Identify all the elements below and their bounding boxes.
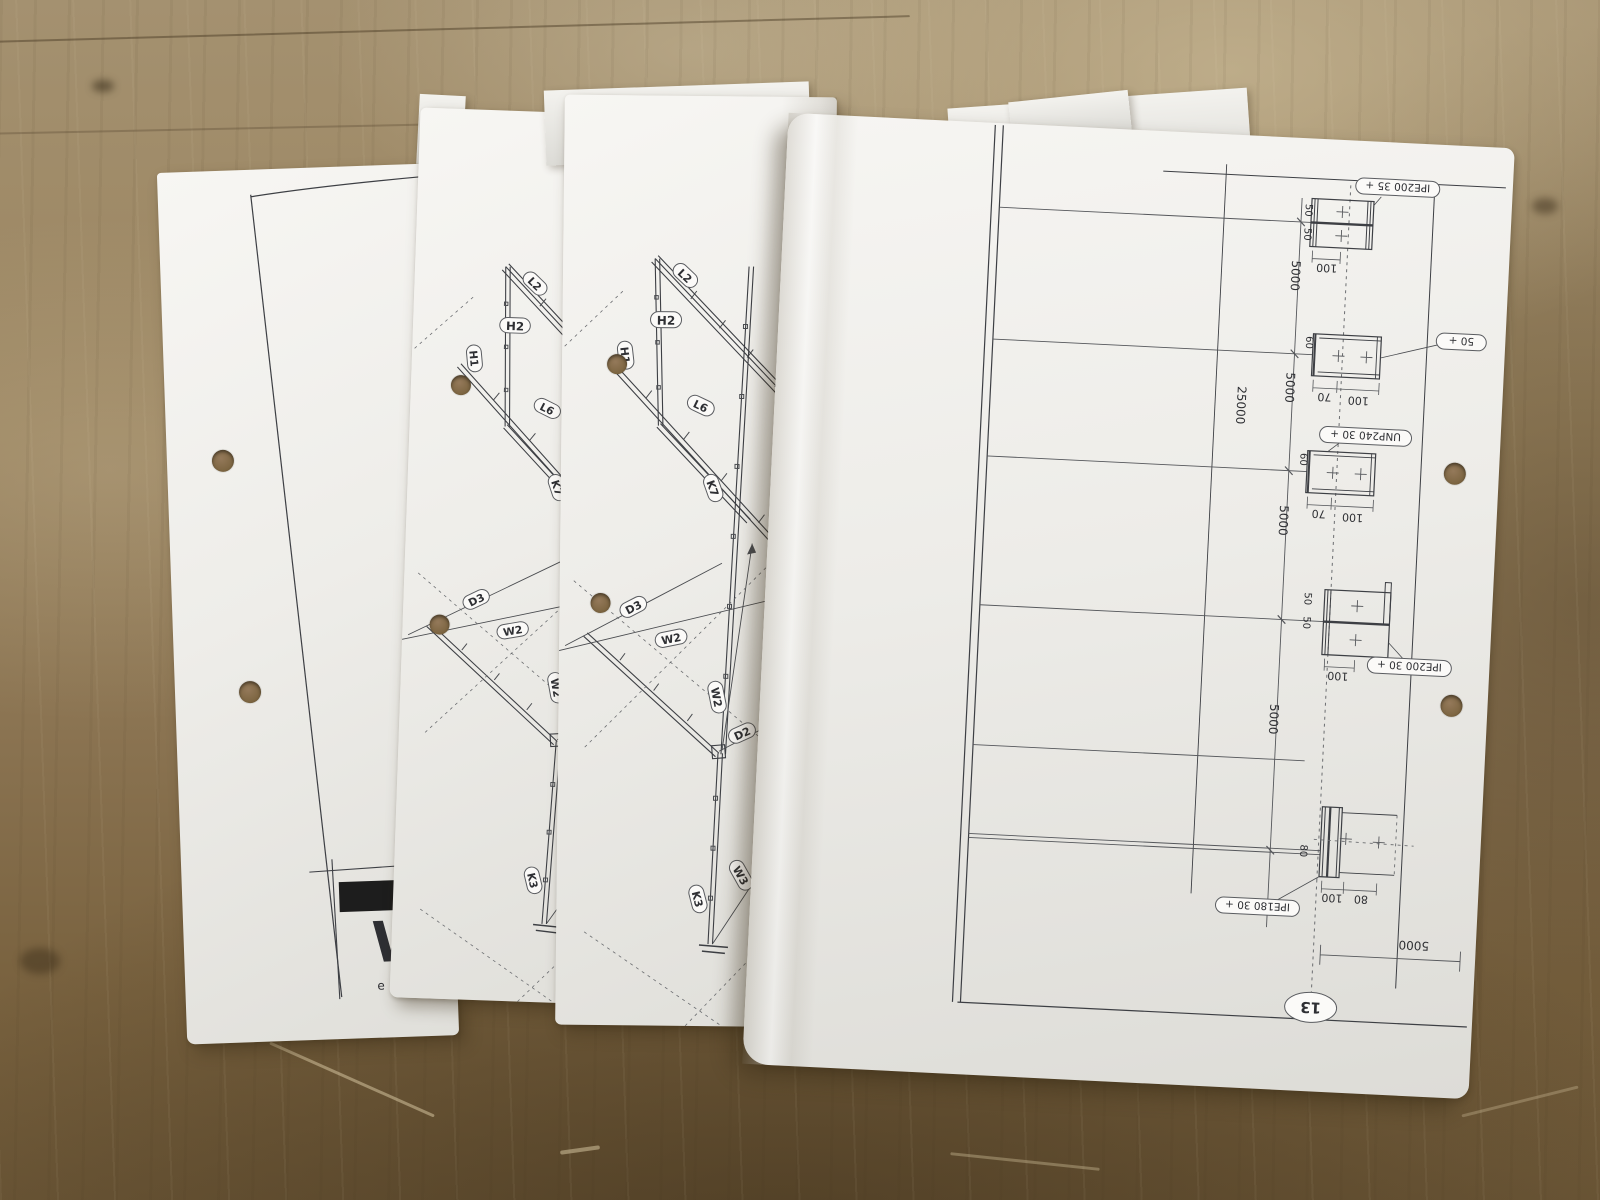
- wood-knot: [1532, 198, 1558, 214]
- frame-border-line: [251, 193, 342, 1000]
- dimension-label: 80: [1354, 892, 1369, 906]
- dimension-label: 60: [1297, 453, 1309, 466]
- profile-tag: UNP240 30 +: [1319, 426, 1412, 446]
- punch-hole: [607, 354, 627, 374]
- grid-reference: 5000 13: [1284, 932, 1461, 1029]
- dimension-label: 50: [1301, 592, 1313, 605]
- dimension-label: 100: [1342, 510, 1364, 524]
- beam-detail-3: UNP240 30 + 60 70 100: [1294, 425, 1412, 526]
- dimension-label: 70: [1311, 507, 1326, 521]
- dimension-label-total: 25000: [1233, 386, 1249, 425]
- dimension-label: 100: [1327, 669, 1349, 683]
- dimension-label: 80: [1297, 844, 1309, 857]
- dimension-label: 100: [1321, 891, 1343, 905]
- drawing-frame-borders: [952, 125, 1509, 1027]
- svg-text:W2: W2: [708, 686, 725, 708]
- wood-knot: [20, 948, 60, 974]
- wood-knot: [92, 80, 114, 92]
- dimension-label: 70: [1317, 390, 1332, 404]
- member-label-k3: K3: [687, 883, 708, 914]
- svg-text:H2: H2: [657, 314, 676, 328]
- dimension-label: 5000: [1282, 372, 1297, 403]
- grid-bubble-label: 13: [1300, 998, 1322, 1017]
- member-label-d3: D3: [461, 587, 492, 612]
- svg-text:W2: W2: [660, 631, 682, 648]
- dimension-label: 50: [1300, 616, 1312, 629]
- detail-drawing-sheet: 5000 5000 5000 5000 25000 IPE200 35 + 10…: [742, 113, 1515, 1099]
- svg-text:50 +: 50 +: [1448, 334, 1474, 347]
- svg-text:H1: H1: [466, 350, 481, 367]
- member-label-k3: K3: [523, 866, 544, 895]
- member-label-k7: K7: [702, 472, 725, 503]
- dimension-label: 100: [1316, 261, 1338, 275]
- member-label-l6: L6: [685, 393, 717, 419]
- beam-detail-2: 50 + 60 70 100: [1300, 326, 1487, 413]
- beam-detail-1: IPE200 35 + 100 50 50: [1299, 175, 1440, 280]
- profile-tag-partial: 50 +: [1436, 333, 1487, 351]
- dimension-label: 100: [1348, 393, 1370, 407]
- dimension-label: 5000: [1276, 505, 1291, 536]
- logo-box-line: [332, 859, 340, 999]
- beam-detail-4: IPE200 30 + 50 50 100: [1298, 578, 1456, 687]
- profile-tag: IPE200 35 +: [1355, 178, 1440, 198]
- member-label-h2: H2: [500, 317, 531, 333]
- dimension-label: 5000: [1398, 938, 1429, 953]
- profile-tag: IPE180 30 +: [1215, 897, 1300, 917]
- member-label-d2: D2: [726, 720, 758, 745]
- member-label-h2: H2: [650, 312, 681, 328]
- member-label-l6: L6: [532, 396, 563, 421]
- column-base-detail: IPE180 30 + 80 100 80: [1215, 802, 1415, 922]
- svg-text:H2: H2: [506, 319, 525, 333]
- member-label-w2: W2: [496, 621, 530, 641]
- dimension-label: 50: [1302, 204, 1314, 217]
- profile-tag: IPE200 30 +: [1367, 657, 1452, 677]
- dimension-label: 60: [1303, 336, 1315, 349]
- member-label-h1: H1: [466, 344, 483, 372]
- frame-border-line: [250, 177, 420, 197]
- dimension-label: 5000: [1288, 260, 1303, 291]
- svg-text:K3: K3: [524, 872, 540, 890]
- punch-hole: [590, 593, 610, 613]
- member-label-w2: W2: [654, 628, 688, 649]
- dimension-label: 50: [1301, 228, 1313, 241]
- dimension-label: 5000: [1266, 704, 1281, 735]
- beam-detail-drawing: 5000 5000 5000 5000 25000 IPE200 35 + 10…: [742, 113, 1515, 1099]
- svg-text:K3: K3: [689, 890, 706, 909]
- dimension-chain: 5000 5000 5000 5000 25000: [962, 168, 1353, 993]
